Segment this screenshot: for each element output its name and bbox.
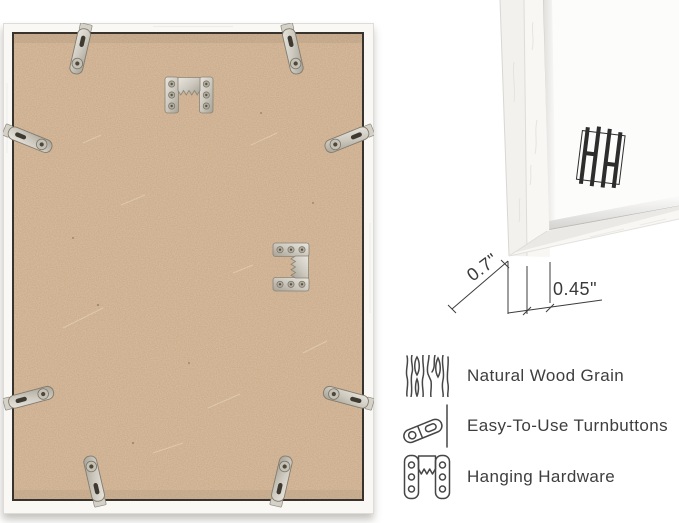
feature-list: Natural Wood Grain Easy-To-Use bbox=[402, 354, 679, 504]
corner-closeup-photo: 0.7" 0.45" bbox=[400, 0, 679, 330]
mat-board bbox=[542, 0, 679, 230]
feature-label: Hanging Hardware bbox=[467, 467, 615, 487]
wood-grain-icon bbox=[402, 355, 452, 397]
turnbutton-icon bbox=[402, 403, 452, 449]
face-width-dimension-label: 0.45" bbox=[553, 279, 597, 299]
depth-dimension-label: 0.7" bbox=[463, 249, 502, 285]
feature-item-hanging-hardware: Hanging Hardware bbox=[402, 453, 615, 501]
feature-item-turnbuttons: Easy-To-Use Turnbuttons bbox=[402, 404, 668, 448]
hanging-hardware-icon bbox=[402, 453, 452, 501]
product-image: 0.7" 0.45" bbox=[0, 0, 679, 523]
feature-item-wood-grain: Natural Wood Grain bbox=[402, 354, 624, 398]
frame-back-graphic bbox=[3, 23, 374, 514]
frame-back-photo bbox=[3, 23, 374, 514]
feature-label: Natural Wood Grain bbox=[467, 366, 624, 386]
feature-label: Easy-To-Use Turnbuttons bbox=[467, 416, 668, 436]
mdf-texture bbox=[14, 34, 362, 499]
moulding-vertical bbox=[500, 0, 550, 257]
